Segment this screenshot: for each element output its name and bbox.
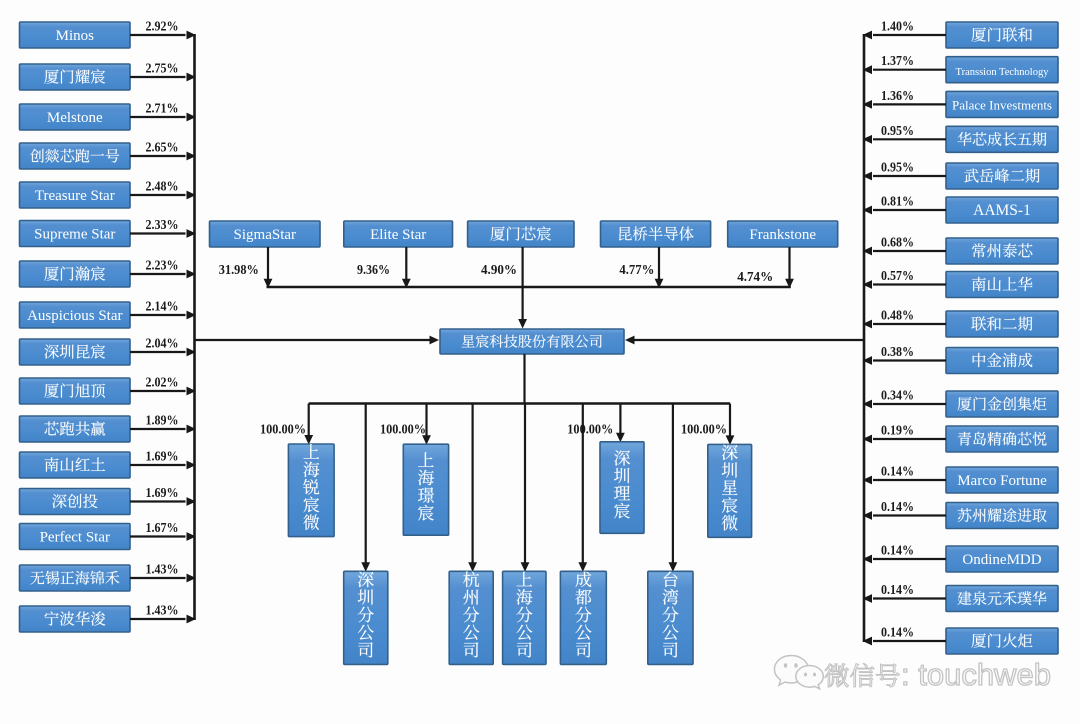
svg-text:: touchweb: : touchweb bbox=[901, 657, 1051, 692]
svg-text:Melstone: Melstone bbox=[47, 110, 103, 126]
svg-text:0.14%: 0.14% bbox=[881, 544, 914, 559]
svg-text:2.14%: 2.14% bbox=[146, 300, 179, 315]
svg-text:Transsion Technology: Transsion Technology bbox=[956, 67, 1050, 78]
svg-text:2.48%: 2.48% bbox=[146, 180, 179, 195]
svg-text:2.65%: 2.65% bbox=[146, 141, 179, 156]
svg-text:4.90%: 4.90% bbox=[481, 263, 517, 278]
svg-text:AAMS-1: AAMS-1 bbox=[973, 202, 1031, 219]
svg-text:2.04%: 2.04% bbox=[146, 337, 179, 352]
svg-text:0.34%: 0.34% bbox=[881, 389, 914, 404]
svg-text:2.33%: 2.33% bbox=[146, 218, 179, 233]
svg-text:0.95%: 0.95% bbox=[881, 161, 914, 176]
svg-text:SigmaStar: SigmaStar bbox=[234, 227, 297, 243]
svg-text:1.43%: 1.43% bbox=[146, 604, 179, 619]
svg-text:0.95%: 0.95% bbox=[881, 124, 914, 139]
svg-text:4.74%: 4.74% bbox=[737, 270, 773, 285]
svg-text:1.69%: 1.69% bbox=[146, 486, 179, 501]
svg-text:2.02%: 2.02% bbox=[146, 376, 179, 391]
svg-text:1.40%: 1.40% bbox=[881, 20, 914, 35]
svg-text:2.75%: 2.75% bbox=[146, 62, 179, 77]
svg-text:1.37%: 1.37% bbox=[881, 54, 914, 69]
svg-text:100.00%: 100.00% bbox=[380, 423, 426, 438]
svg-text:Elite Star: Elite Star bbox=[370, 227, 426, 243]
svg-text:1.36%: 1.36% bbox=[881, 89, 914, 104]
svg-text:Perfect Star: Perfect Star bbox=[40, 530, 110, 546]
svg-text:Minos: Minos bbox=[56, 28, 95, 44]
svg-text:Palace Investments: Palace Investments bbox=[952, 98, 1052, 113]
svg-text:0.19%: 0.19% bbox=[881, 424, 914, 439]
svg-text:0.14%: 0.14% bbox=[881, 465, 914, 480]
svg-text:OndineMDD: OndineMDD bbox=[962, 552, 1041, 568]
svg-text:2.92%: 2.92% bbox=[146, 20, 179, 35]
svg-text:0.81%: 0.81% bbox=[881, 195, 914, 210]
svg-text:1.43%: 1.43% bbox=[146, 563, 179, 578]
svg-text:0.57%: 0.57% bbox=[881, 269, 914, 284]
svg-text:2.23%: 2.23% bbox=[146, 259, 179, 274]
svg-text:9.36%: 9.36% bbox=[357, 263, 390, 278]
svg-text:0.48%: 0.48% bbox=[881, 309, 914, 324]
svg-text:31.98%: 31.98% bbox=[219, 263, 259, 278]
svg-text:100.00%: 100.00% bbox=[567, 423, 613, 438]
svg-text:100.00%: 100.00% bbox=[681, 423, 727, 438]
svg-text:0.38%: 0.38% bbox=[881, 345, 914, 360]
svg-text:0.68%: 0.68% bbox=[881, 236, 914, 251]
svg-text:1.89%: 1.89% bbox=[146, 414, 179, 429]
svg-text:Treasure Star: Treasure Star bbox=[35, 188, 115, 204]
svg-text:Frankstone: Frankstone bbox=[749, 227, 816, 243]
svg-text:0.14%: 0.14% bbox=[881, 500, 914, 515]
svg-text:Auspicious Star: Auspicious Star bbox=[27, 308, 122, 324]
svg-text:1.67%: 1.67% bbox=[146, 521, 179, 536]
svg-text:Marco Fortune: Marco Fortune bbox=[957, 473, 1047, 489]
svg-text:4.77%: 4.77% bbox=[619, 263, 654, 278]
svg-text:0.14%: 0.14% bbox=[881, 626, 914, 641]
svg-text:1.69%: 1.69% bbox=[146, 450, 179, 465]
svg-text:100.00%: 100.00% bbox=[260, 423, 306, 438]
svg-text:2.71%: 2.71% bbox=[146, 102, 179, 117]
svg-text:0.14%: 0.14% bbox=[881, 583, 914, 598]
svg-text:Supreme Star: Supreme Star bbox=[34, 227, 115, 243]
